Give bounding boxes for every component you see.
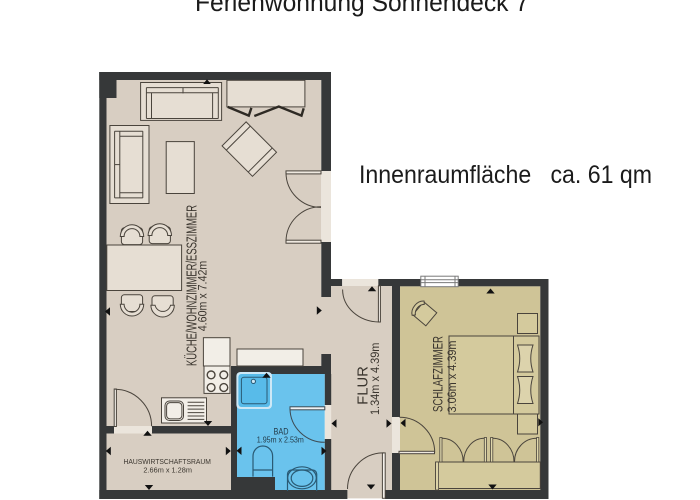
svg-text:1.34m x 4.39m: 1.34m x 4.39m — [368, 343, 382, 416]
svg-text:1.95m x 2.53m: 1.95m x 2.53m — [257, 436, 304, 445]
svg-text:4.60m x 7.42m: 4.60m x 7.42m — [196, 261, 210, 332]
svg-text:Innenraumfläche ca. 61 qm: Innenraumfläche ca. 61 qm — [359, 161, 652, 189]
svg-text:3.06m x 4.39m: 3.06m x 4.39m — [445, 341, 459, 413]
svg-text:Ferienwohnung Sonnendeck 7: Ferienwohnung Sonnendeck 7 — [195, 0, 529, 17]
svg-text:SCHLAFZIMMER: SCHLAFZIMMER — [430, 336, 446, 412]
svg-text:2.66m x 1.28m: 2.66m x 1.28m — [143, 467, 192, 474]
svg-text:HAUSWIRTSCHAFTSRAUM: HAUSWIRTSCHAFTSRAUM — [123, 459, 211, 466]
